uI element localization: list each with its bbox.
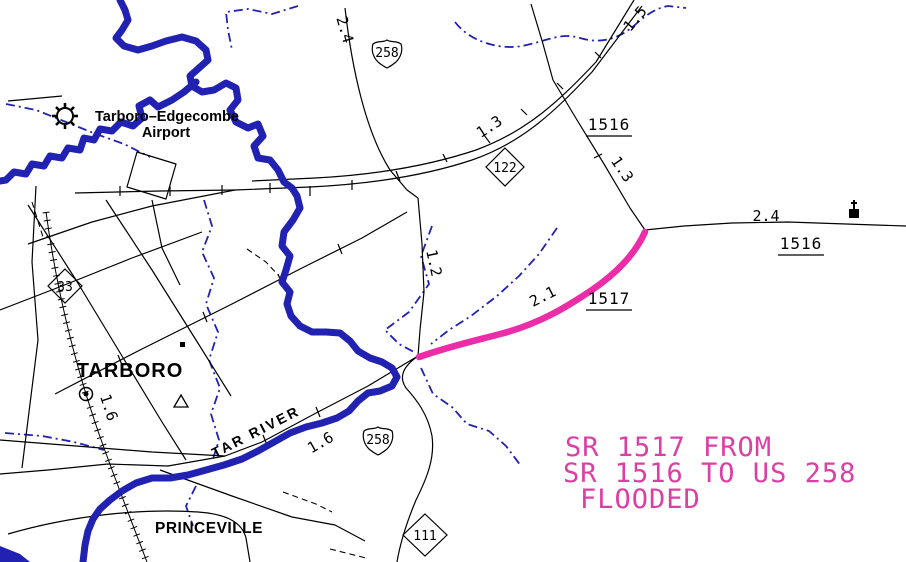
building-icon <box>180 342 185 347</box>
road-highway-upper <box>252 0 634 181</box>
town-center-icon <box>80 388 93 401</box>
route-number-labels: 1516 1516 1517 <box>586 115 824 310</box>
tar-river-main <box>83 0 397 562</box>
distance-1-3-sr1516: 1.3 <box>607 153 637 186</box>
shield-nc122: 122 <box>486 148 524 186</box>
distance-1-6-us258: 1.6 <box>304 428 336 457</box>
shield-nc33: 33 <box>48 269 82 303</box>
flood-annotation-line3: FLOODED <box>580 484 701 515</box>
county-flood-map: 258 258 122 33 111 1516 1516 1517 2.4 1.… <box>0 0 906 562</box>
label-princeville: PRINCEVILLE <box>155 520 263 537</box>
distance-2-4-east: 2.4 <box>752 207 779 225</box>
triangle-icon <box>174 395 188 407</box>
flood-annotation: SR 1517 FROM SR 1516 TO US 258 FLOODED <box>563 432 856 515</box>
shield-us258-north-label: 258 <box>375 46 398 61</box>
road-highway-lower <box>235 6 642 190</box>
shield-us258-north: 258 <box>372 40 402 68</box>
stream-mid-vertical <box>202 200 220 462</box>
road-left-edge <box>22 186 38 468</box>
label-sr1516-upper: 1516 <box>588 115 631 134</box>
distance-2-1-sr1517: 2.1 <box>527 282 559 310</box>
boundary-dash-3 <box>283 492 332 512</box>
boundary-dash-2 <box>247 249 278 275</box>
shield-nc111: 111 <box>403 514 447 556</box>
distance-1-2-south: 1.2 <box>422 248 445 278</box>
tick <box>316 407 320 417</box>
shield-us258-south-label: 258 <box>366 433 389 448</box>
road-sr-south-1-2 <box>418 198 424 356</box>
airport-access-line <box>8 96 62 101</box>
tar-river-corner <box>0 546 30 562</box>
street-tarboro-1 <box>28 190 235 244</box>
road-west-main <box>75 190 235 193</box>
label-sr1516-east: 1516 <box>780 234 823 253</box>
stream-along-1517 <box>431 228 557 344</box>
label-sr1517: 1517 <box>588 289 631 308</box>
road-southwest-diagonal <box>0 356 418 474</box>
stream-below-junction <box>421 368 521 466</box>
boundary-dash-4 <box>330 549 366 558</box>
shield-us258-south: 258 <box>363 427 393 455</box>
distance-2-4-north: 2.4 <box>332 14 357 45</box>
tick <box>521 109 527 115</box>
shield-nc122-label: 122 <box>493 161 516 176</box>
distance-1-3-highway: 1.3 <box>473 112 506 142</box>
distance-1-6-tarboro: 1.6 <box>96 392 121 423</box>
label-airport-line1: Tarboro–Edgecombe <box>95 109 239 125</box>
airport-field-spur <box>152 200 180 285</box>
shield-nc111-label: 111 <box>413 529 436 544</box>
shield-nc33-label: 33 <box>57 280 73 295</box>
road-north-stub <box>531 4 553 80</box>
stream-top-center <box>455 6 686 47</box>
church-icon <box>849 200 859 218</box>
tick <box>338 244 342 254</box>
map-canvas: 258 258 122 33 111 1516 1516 1517 2.4 1.… <box>0 0 906 562</box>
road-west-feeder <box>0 440 225 456</box>
tick <box>443 154 447 162</box>
stream-center <box>385 226 432 352</box>
label-tarboro: TARBORO <box>77 360 184 382</box>
label-airport-line2: Airport <box>142 125 191 141</box>
stream-top-left <box>226 6 298 50</box>
